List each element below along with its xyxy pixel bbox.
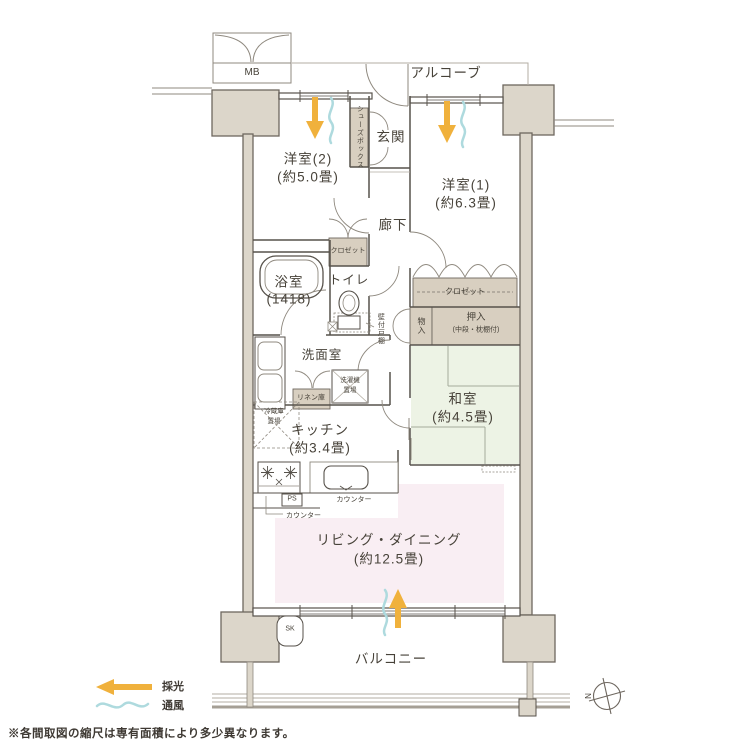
western2-name: 洋室(2) [284, 152, 333, 169]
compass-north-label: N [584, 693, 594, 699]
living-dining-name: リビング・ダイニング [317, 533, 462, 550]
west2-door-arc [334, 198, 369, 233]
toilet-label: トイレ [329, 273, 370, 289]
japanese-name: 和室 [449, 392, 478, 409]
vanity-icon [255, 337, 285, 409]
linen-door-arc [295, 371, 312, 388]
wall-cabinet-label: 壁付戸棚 [376, 313, 385, 345]
alcove-label: アルコーブ [410, 66, 481, 83]
wall-stub-right [554, 120, 614, 126]
fridge-space-line1: 冷蔵庫 [264, 408, 284, 416]
japanese-size: (約4.5畳) [432, 410, 494, 427]
bath-name: 浴室 [275, 275, 304, 292]
oshiire-note: (中段・枕棚付) [453, 327, 500, 336]
hallway-label: 廊下 [379, 218, 408, 235]
oshiire-name: 押入 [466, 312, 485, 324]
washroom-label: 洗面室 [302, 348, 343, 364]
western1-name: 洋室(1) [442, 178, 491, 195]
floor-plan: MB アルコーブ 玄関 シューズボックス 洋室(2) (約5.0畳) 洋室(1)… [0, 0, 750, 750]
closet-west2-label: クロゼット [331, 248, 366, 257]
slop-sink-label: SK [285, 626, 294, 635]
window-west2 [279, 90, 372, 102]
legend-ventilation-label: 通風 [162, 700, 184, 714]
washer-space-line1: 洗濯機 [340, 377, 360, 385]
western1-size: (約6.3畳) [435, 196, 497, 213]
shoes-box-door-arc [370, 147, 388, 165]
toilet-door-arc [369, 266, 399, 296]
storage-door-arc [393, 326, 410, 343]
kitchen-door-arc [382, 400, 410, 428]
closet-west1-folding-doors [413, 265, 517, 278]
window-west1 [410, 94, 503, 106]
meter-box-label: MB [245, 67, 260, 80]
west1-door-arc [410, 232, 446, 268]
closet-west1-label: クロゼット [445, 287, 485, 297]
shoes-box-door-arc [370, 112, 388, 130]
kitchen-name: キッチン [291, 423, 349, 440]
bath-size: (1418) [266, 292, 311, 309]
western2-size: (約5.0畳) [277, 170, 339, 187]
storage-small-label: 物入 [416, 317, 426, 335]
linen-door-arc [313, 371, 330, 388]
fridge-space-line2: 置場 [268, 418, 281, 426]
counter-kitchen-label: カウンター [337, 497, 372, 506]
washroom-door-arc [358, 340, 390, 372]
footnote: ※各間取図の縮尺は専有面積により多少異なります。 [8, 727, 295, 741]
storage-door-arc [393, 309, 410, 326]
entry-door [366, 64, 408, 106]
toilet-icon [328, 291, 374, 332]
living-dining-size: (約12.5畳) [354, 552, 424, 569]
floor-plan-drawing [0, 0, 750, 750]
sink-counter-icon [310, 462, 398, 493]
pipe-space-label: PS [287, 496, 296, 505]
legend-daylight-label: 採光 [162, 681, 184, 695]
compass-icon [589, 678, 625, 714]
kitchen-size: (約3.4畳) [289, 441, 351, 458]
balcony-railing [212, 662, 570, 716]
counter-hall-label: カウンター [286, 513, 321, 522]
stove-icon [258, 462, 300, 493]
wall-stub-left [152, 88, 212, 94]
washer-space-line2: 置場 [344, 387, 357, 395]
closet-west2-door-arc [329, 219, 348, 238]
counter-lines [253, 493, 398, 514]
sliding-door-tatami [482, 466, 515, 472]
linen-label: リネン庫 [297, 395, 325, 404]
balcony-label: バルコニー [355, 652, 427, 669]
shoes-box-label: シューズボックス [355, 105, 364, 169]
entrance-label: 玄関 [377, 130, 406, 147]
